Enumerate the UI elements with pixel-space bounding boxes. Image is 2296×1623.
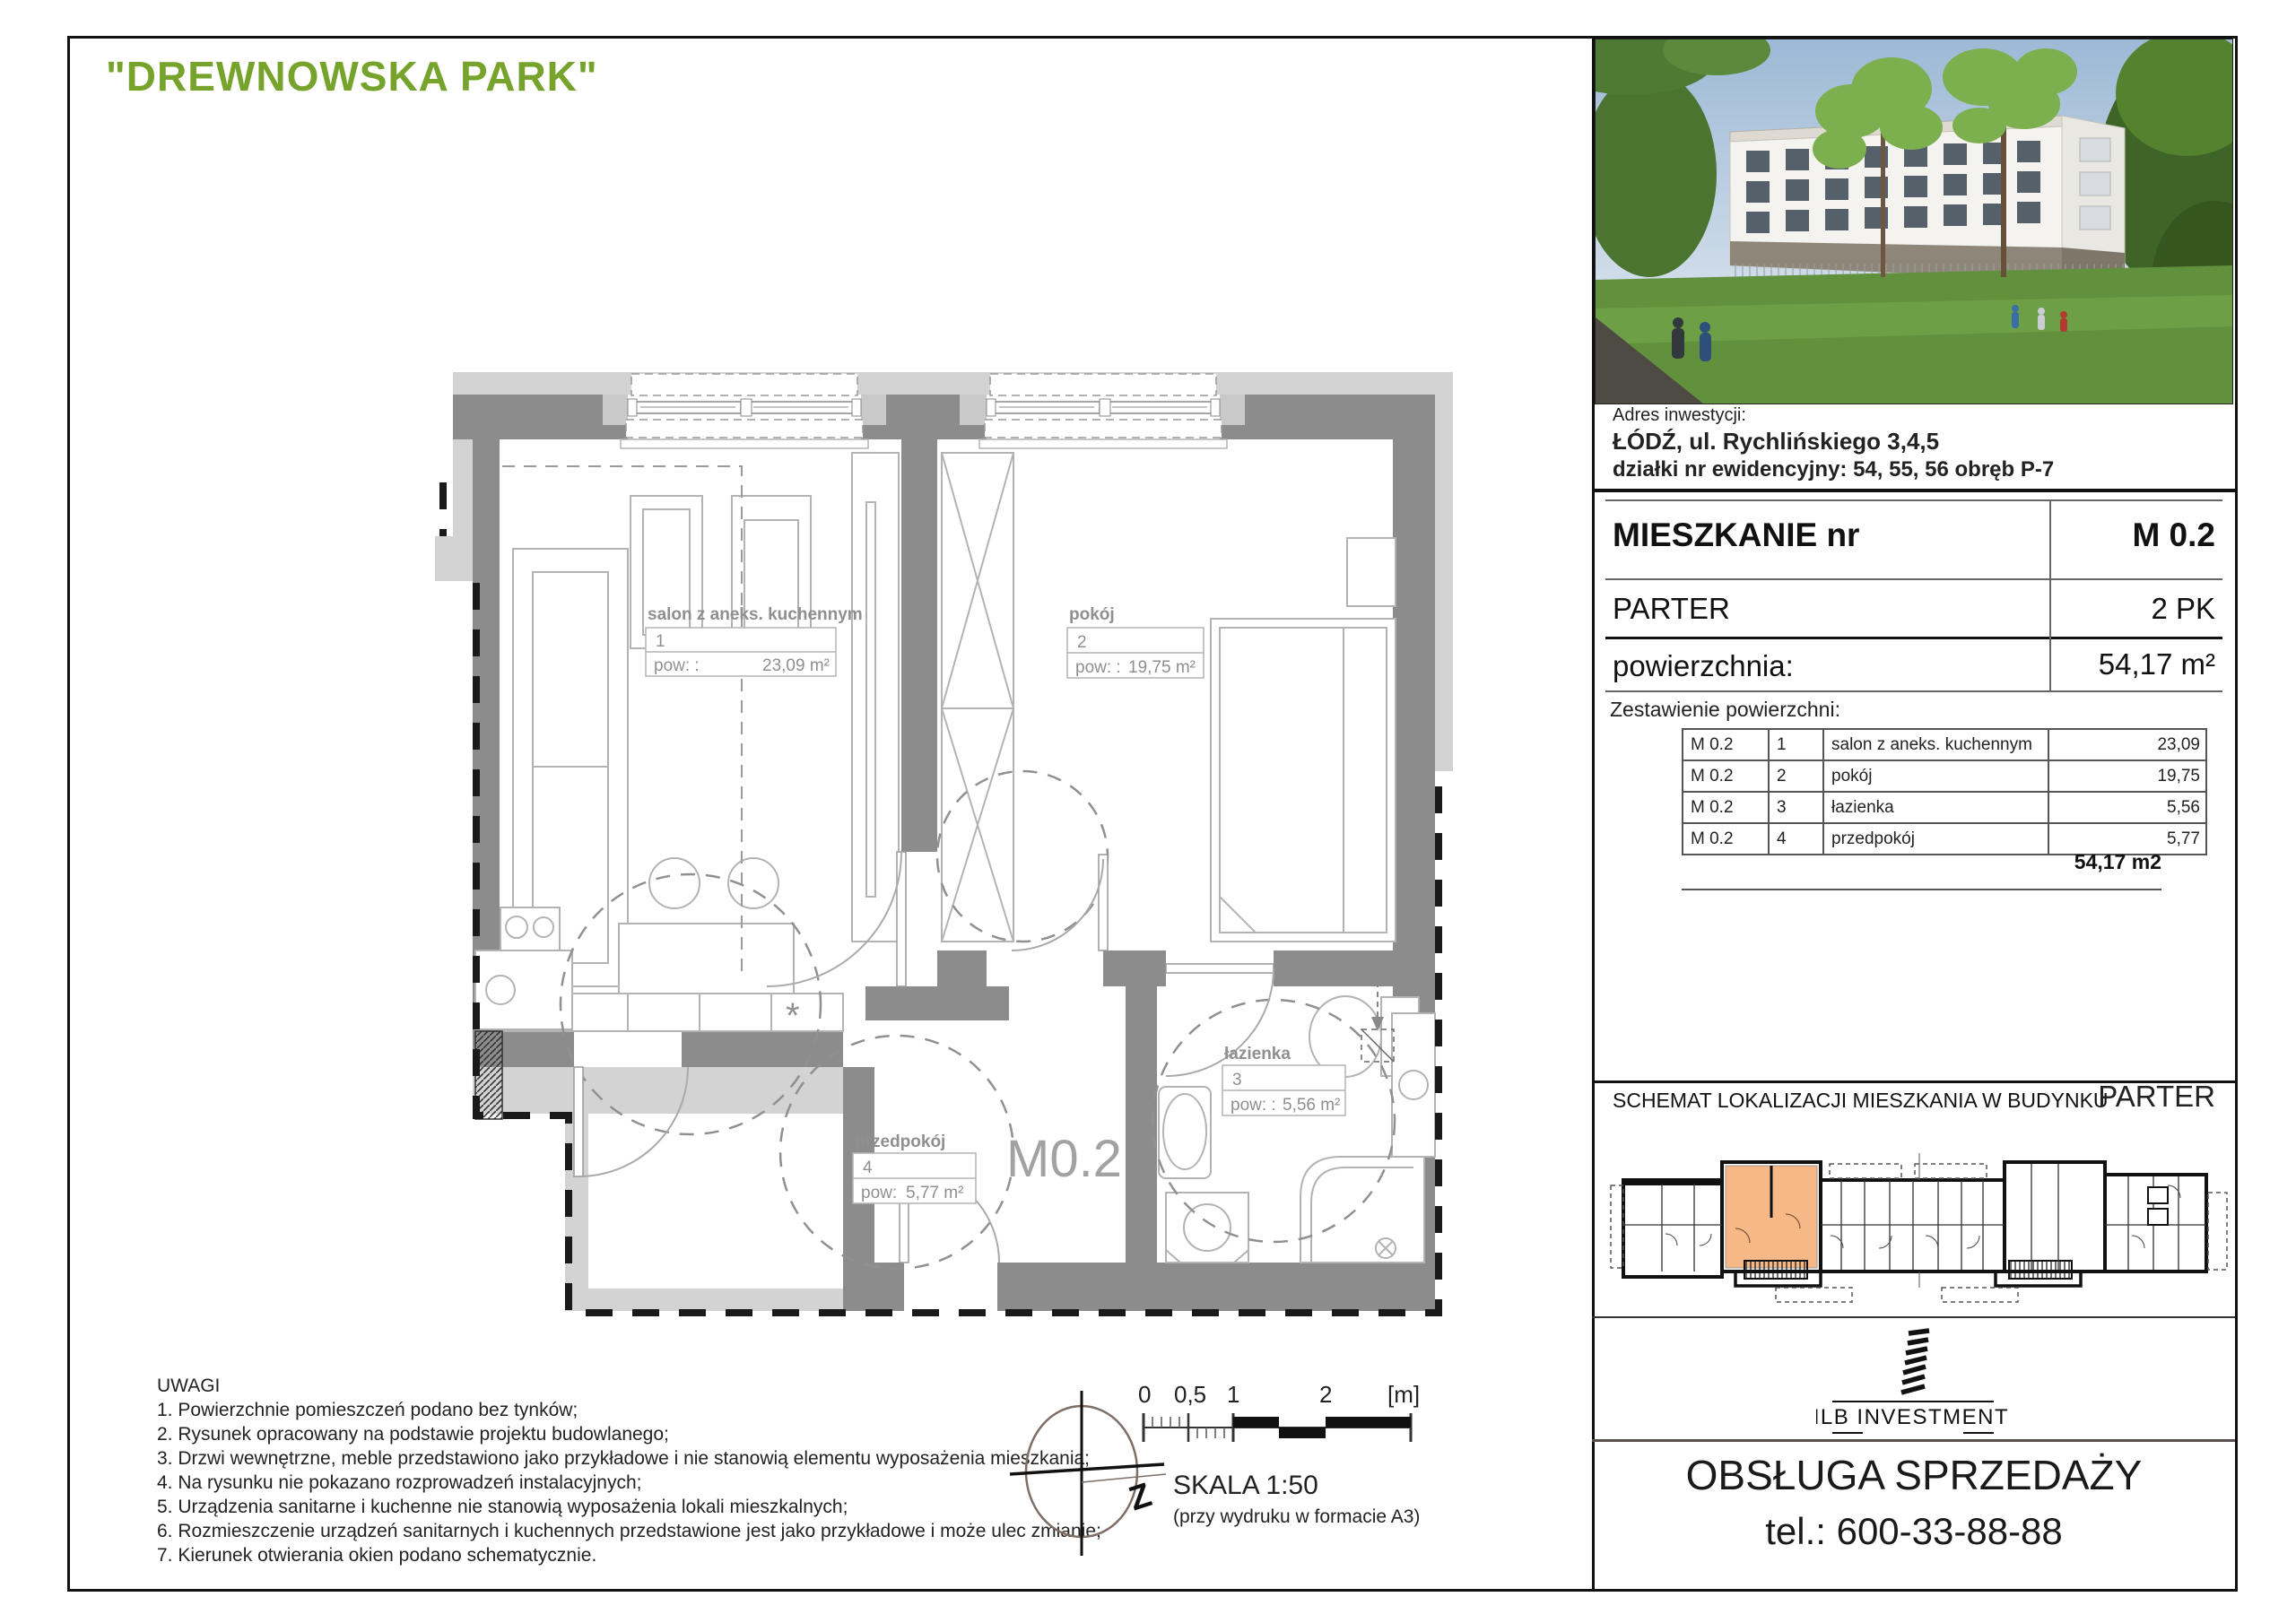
notes-block: UWAGI 1. Powierzchnie pomieszczeń podano… (157, 1374, 1101, 1567)
apartment-floor: PARTER (1613, 592, 1730, 626)
sales-phone: tel.: 600-33-88-88 (1595, 1510, 2233, 1553)
scale-tick: 1 (1227, 1381, 1239, 1408)
cell: M 0.2 (1683, 760, 1769, 792)
svg-text:salon z aneks. kuchennym: salon z aneks. kuchennym (648, 605, 863, 624)
address-line1: ŁÓDŹ, ul. Rychlińskiego 3,4,5 (1613, 428, 2054, 456)
cell: 1 (1769, 729, 1823, 760)
furniture (475, 453, 1435, 1263)
cell: 23,09 (2048, 729, 2206, 760)
svg-text:2: 2 (1077, 633, 1087, 652)
scale-bar: 0 0,5 1 2 [m] (1133, 1381, 1429, 1462)
svg-text:pow:: pow: (861, 1184, 897, 1202)
scale-tick: 2 (1319, 1381, 1332, 1408)
brand-name: MLB INVESTMENTS (1816, 1405, 2009, 1429)
north-label: Z (1125, 1476, 1156, 1518)
page: "DREWNOWSKA PARK" (0, 0, 2296, 1623)
apartment-number-label: M0.2 (1006, 1130, 1122, 1188)
table-row: M 0.2 3 łazienka 5,56 (1683, 792, 2206, 823)
cell: łazienka (1823, 792, 2048, 823)
svg-text:przedpokój: przedpokój (855, 1133, 945, 1151)
note-item: 7. Kierunek otwierania okien podano sche… (157, 1543, 1101, 1567)
building-photo (1595, 39, 2233, 404)
divider (1682, 889, 2161, 890)
window-icon (979, 374, 1227, 448)
area-table-heading: Zestawienie powierzchni: (1610, 698, 1840, 722)
cell: 4 (1769, 823, 1823, 855)
note-item: 5. Urządzenia sanitarne i kuchenne nie s… (157, 1495, 1101, 1519)
mlb-logo: MLB INVESTMENTS (1816, 1323, 2009, 1439)
room-label-pokoj: pokój 2 pow: : 19,75 m² (1067, 605, 1204, 678)
svg-text:4: 4 (863, 1159, 873, 1177)
divider (1592, 1439, 2235, 1442)
notes-heading: UWAGI (157, 1374, 1101, 1398)
divider (1605, 637, 2222, 639)
apartment-label: MIESZKANIE nr (1613, 516, 1859, 554)
scale-tick: 0 (1138, 1381, 1151, 1408)
building-schematic (1610, 1128, 2229, 1307)
svg-text:1: 1 (656, 632, 665, 651)
cell: M 0.2 (1683, 792, 1769, 823)
logo-sail-icon (1901, 1331, 1929, 1393)
note-item: 1. Powierzchnie pomieszczeń podano bez t… (157, 1398, 1101, 1422)
note-item: 6. Rozmieszczenie urządzeń sanitarnych i… (157, 1519, 1101, 1543)
table-row: M 0.2 1 salon z aneks. kuchennym 23,09 (1683, 729, 2206, 760)
kitchen-star-symbol: * (786, 996, 800, 1036)
svg-text:19,75 m²: 19,75 m² (1128, 658, 1196, 677)
svg-text:pow: :: pow: : (1231, 1096, 1276, 1115)
note-item: 2. Rysunek opracowany na podstawie proje… (157, 1422, 1101, 1446)
divider (1605, 578, 2222, 580)
address-line2: działki nr ewidencyjny: 54, 55, 56 obręb… (1613, 457, 2054, 482)
cell: M 0.2 (1683, 729, 1769, 760)
window-icon (621, 374, 868, 448)
room-label-salon: salon z aneks. kuchennym 1 pow: : 23,09 … (646, 605, 863, 676)
note-item: 4. Na rysunku nie pokazano rozprowadzeń … (157, 1471, 1101, 1495)
apartment-number: M 0.2 (2063, 516, 2215, 554)
scale-tick: [m] (1387, 1381, 1420, 1408)
svg-text:pow: :: pow: : (654, 656, 700, 675)
floor-plan: salon z aneks. kuchennym 1 pow: : 23,09 … (422, 354, 1471, 1332)
svg-text:pokój: pokój (1069, 605, 1115, 624)
area-value: 54,17 m² (2036, 647, 2215, 681)
address-block: Adres inwestycji: ŁÓDŹ, ul. Rychlińskieg… (1613, 405, 2054, 482)
note-item: 3. Drzwi wewnętrzne, meble przedstawiono… (157, 1446, 1101, 1471)
scale-sublabel: (przy wydruku w formacie A3) (1173, 1506, 1420, 1528)
schematic-floor: PARTER (2018, 1080, 2215, 1114)
scale-tick: 0,5 (1174, 1381, 1206, 1408)
room-label-przedpokoj: przedpokój 4 pow: 5,77 m² (853, 1133, 976, 1203)
divider (1605, 499, 2222, 501)
apartment-rooms: 2 PK (2063, 592, 2215, 626)
cell: 3 (1769, 792, 1823, 823)
area-label: powierzchnia: (1613, 649, 1794, 683)
cell: 19,75 (2048, 760, 2206, 792)
svg-text:pow: :: pow: : (1075, 658, 1121, 677)
svg-text:5,77 m²: 5,77 m² (906, 1184, 963, 1202)
scale-label: SKALA 1:50 (1173, 1471, 1318, 1501)
project-title: "DREWNOWSKA PARK" (106, 52, 598, 100)
area-total: 54,17 m2 (1919, 850, 2161, 874)
address-heading: Adres inwestycji: (1613, 405, 2054, 426)
cell: M 0.2 (1683, 823, 1769, 855)
svg-text:5,56 m²: 5,56 m² (1283, 1096, 1340, 1115)
cell: salon z aneks. kuchennym (1823, 729, 2048, 760)
area-table: M 0.2 1 salon z aneks. kuchennym 23,09 M… (1682, 728, 2207, 855)
svg-text:3: 3 (1232, 1071, 1242, 1089)
table-row: M 0.2 2 pokój 19,75 (1683, 760, 2206, 792)
svg-text:łazienka: łazienka (1224, 1045, 1291, 1063)
svg-text:23,09 m²: 23,09 m² (762, 656, 830, 675)
divider (1605, 690, 2222, 692)
cell: 2 (1769, 760, 1823, 792)
divider (1592, 1316, 2235, 1318)
cell: 5,56 (2048, 792, 2206, 823)
sales-heading: OBSŁUGA SPRZEDAŻY (1595, 1451, 2233, 1499)
cell: pokój (1823, 760, 2048, 792)
divider (1592, 489, 2235, 492)
